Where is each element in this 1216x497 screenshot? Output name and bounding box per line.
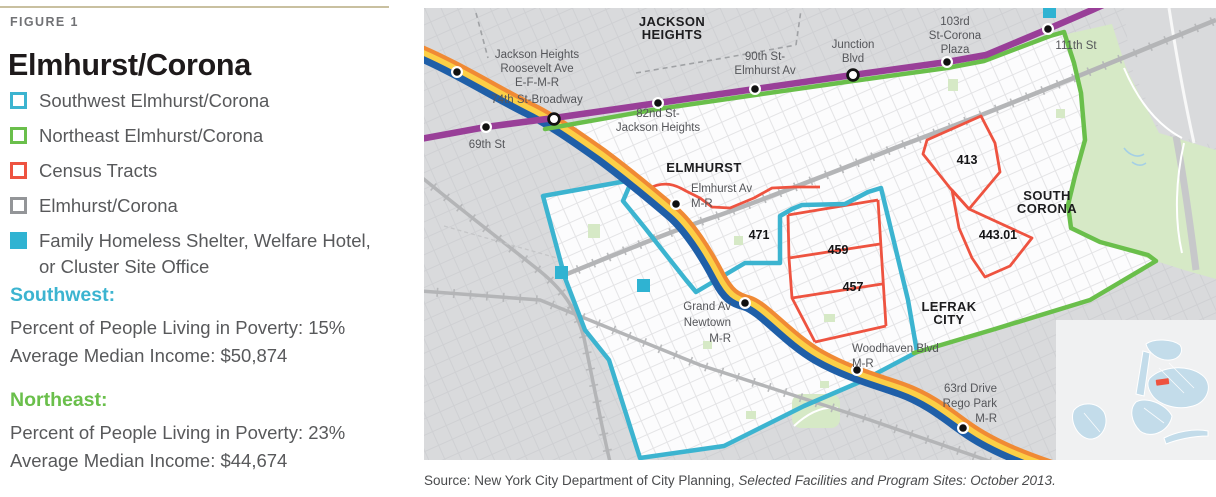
- tract-number-label: 443.01: [979, 228, 1017, 242]
- figure-number: FIGURE 1: [10, 15, 79, 29]
- southwest-poverty: Percent of People Living in Poverty: 15%: [10, 314, 415, 342]
- shelter-square: [1043, 8, 1056, 18]
- station-label: M-R: [709, 333, 731, 345]
- southwest-income: Average Median Income: $50,874: [10, 342, 415, 370]
- map: JACKSON HEIGHTS ELMHURST SOUTH CORONA LE…: [424, 8, 1216, 460]
- elmhurst-corona-swatch: [10, 197, 27, 214]
- legend-label: Southwest Elmhurst/Corona: [39, 88, 269, 114]
- station-label: 111th St: [1055, 40, 1097, 52]
- neighborhood-label: ELMHURST: [666, 160, 741, 175]
- census-tracts-swatch: [10, 162, 27, 179]
- legend-item-shelter: Family Homeless Shelter, Welfare Hotel, …: [10, 228, 410, 280]
- station-label: Rego Park: [943, 398, 998, 410]
- station-label: 82nd St-: [636, 108, 680, 120]
- southwest-stats: Southwest: Percent of People Living in P…: [10, 284, 415, 369]
- map-layers: JACKSON HEIGHTS ELMHURST SOUTH CORONA LE…: [424, 8, 1216, 460]
- shelter-square: [555, 266, 568, 279]
- station-label: St-Corona: [929, 30, 982, 42]
- station-label: Elmhurst Av: [691, 183, 752, 195]
- legend-label: Elmhurst/Corona: [39, 193, 178, 219]
- station-label: E-F-M-R: [515, 77, 559, 89]
- legend-item-southwest: Southwest Elmhurst/Corona: [10, 88, 410, 114]
- source-prefix: Source: New York City Department of City…: [424, 473, 738, 488]
- station-label: Jackson Heights: [616, 122, 701, 134]
- source-citation: Selected Facilities and Program Sites: O…: [738, 473, 1055, 488]
- station-label: Blvd: [842, 53, 864, 65]
- legend-item-elmhurst-corona: Elmhurst/Corona: [10, 193, 410, 219]
- shelter-square: [637, 279, 650, 292]
- figure-page: FIGURE 1 Elmhurst/Corona Southwest Elmhu…: [0, 0, 1216, 497]
- tract-number-label: 471: [749, 228, 770, 242]
- station-label: Newtown: [684, 317, 731, 329]
- southwest-heading: Southwest:: [10, 284, 415, 307]
- legend-label: Census Tracts: [39, 158, 157, 184]
- figure-top-rule: [0, 6, 389, 8]
- inset-map: [1056, 320, 1216, 460]
- neighborhood-label: CITY: [933, 312, 964, 327]
- station-label: Roosevelt Ave: [500, 63, 573, 75]
- station-label: Elmhurst Av: [734, 65, 795, 77]
- station-label: M-R: [691, 198, 713, 210]
- legend-item-census-tracts: Census Tracts: [10, 158, 410, 184]
- neighborhood-label: HEIGHTS: [642, 27, 703, 42]
- shelter-filled-swatch: [10, 232, 27, 249]
- legend-item-northeast: Northeast Elmhurst/Corona: [10, 123, 410, 149]
- station-label: Woodhaven Blvd: [852, 343, 939, 355]
- station-label: 90th St-: [745, 51, 785, 63]
- northeast-income: Average Median Income: $44,674: [10, 447, 415, 475]
- southwest-outline-swatch: [10, 92, 27, 109]
- station-label: Jackson Heights: [495, 49, 580, 61]
- station-label: M-R: [975, 413, 997, 425]
- tract-number-label: 457: [843, 280, 864, 294]
- station-label: Junction: [832, 39, 875, 51]
- source-note: Source: New York City Department of City…: [424, 473, 1056, 488]
- station-label: 74th St-Broadway: [491, 94, 583, 106]
- tract-number-label: 459: [828, 243, 849, 257]
- northeast-outline-swatch: [10, 127, 27, 144]
- station-label: 69th St: [469, 139, 506, 151]
- tract-number-label: 413: [957, 153, 978, 167]
- station-label: 63rd Drive: [944, 383, 997, 395]
- legend-label: Family Homeless Shelter, Welfare Hotel, …: [39, 228, 379, 280]
- station-label: Plaza: [941, 44, 970, 56]
- station-label: 103rd: [940, 16, 969, 28]
- station-label: M-R: [852, 358, 874, 370]
- neighborhood-label: CORONA: [1017, 201, 1077, 216]
- northeast-heading: Northeast:: [10, 389, 415, 412]
- legend: Southwest Elmhurst/Corona Northeast Elmh…: [10, 88, 410, 289]
- northeast-stats: Northeast: Percent of People Living in P…: [10, 389, 415, 474]
- legend-label: Northeast Elmhurst/Corona: [39, 123, 263, 149]
- northeast-poverty: Percent of People Living in Poverty: 23%: [10, 419, 415, 447]
- station-label: Grand Av: [683, 301, 731, 313]
- page-title: Elmhurst/Corona: [8, 48, 251, 83]
